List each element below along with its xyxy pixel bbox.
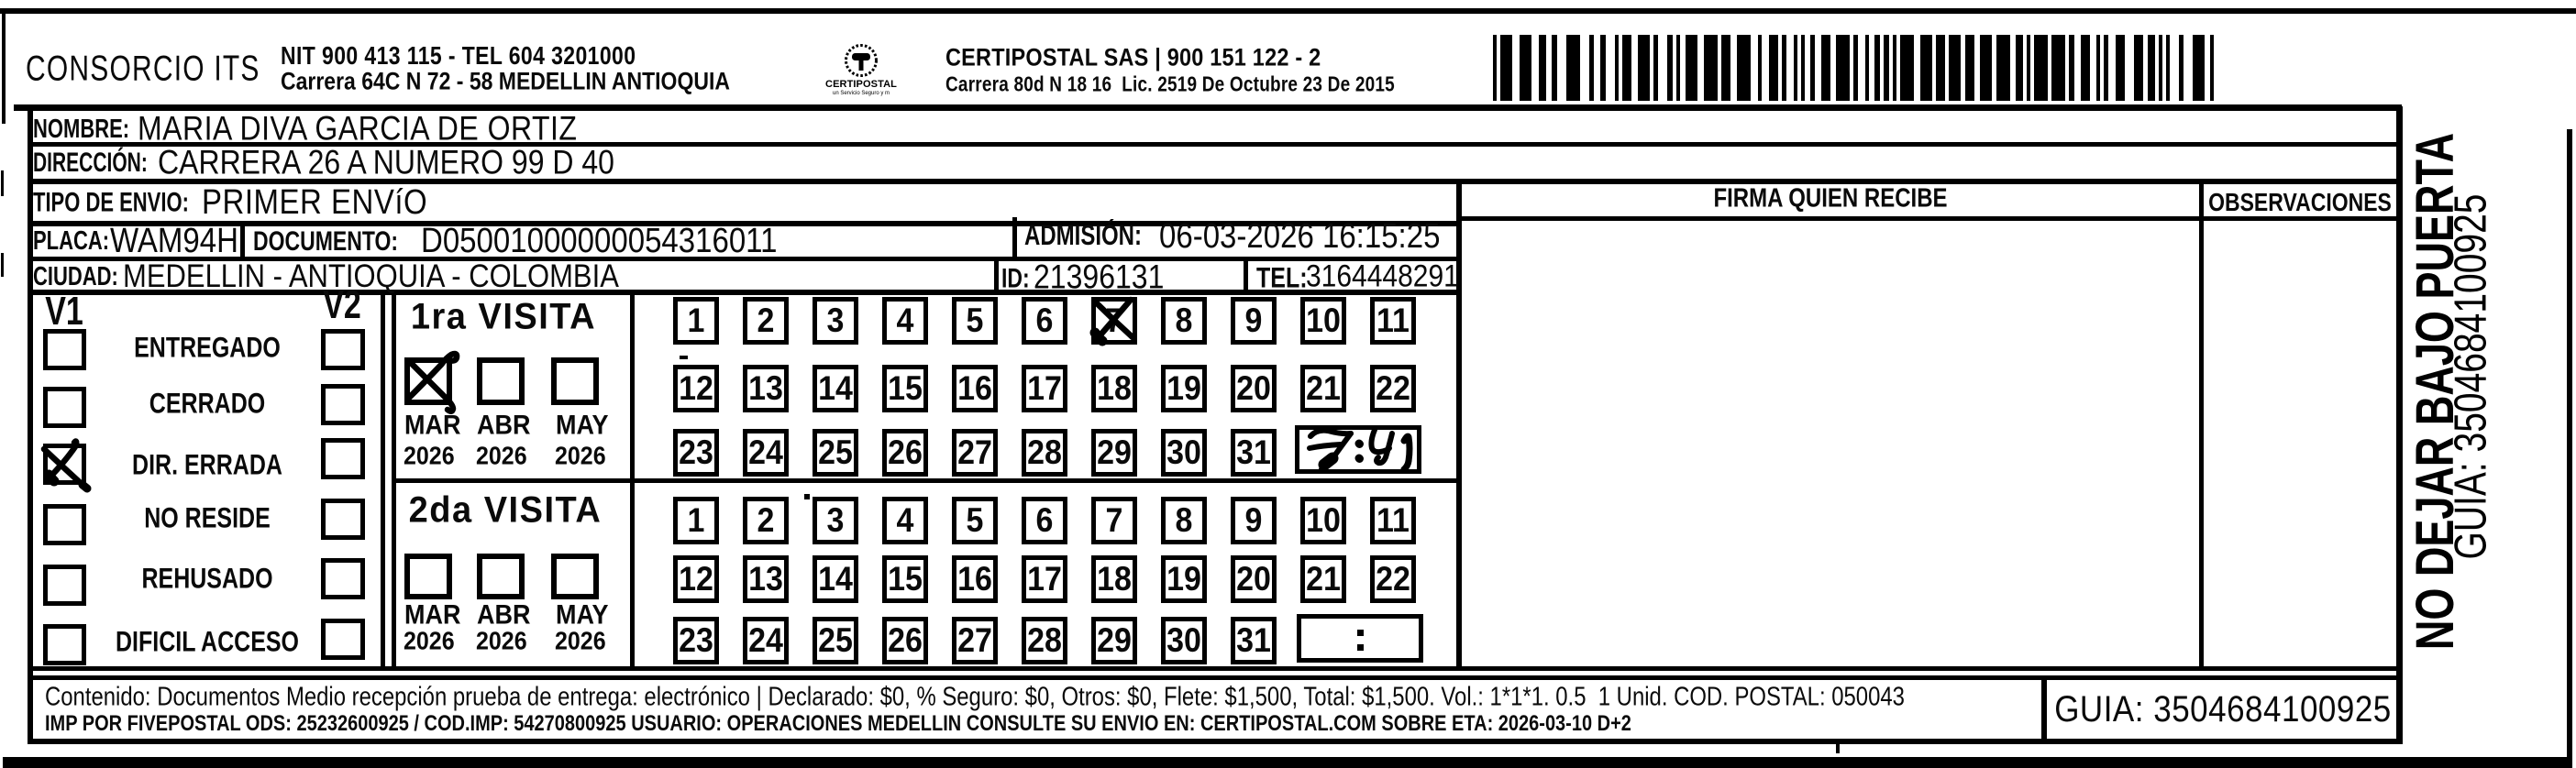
svg-text:CERTIPOSTAL: CERTIPOSTAL: [825, 79, 897, 90]
svg-text:un Servicio Seguro y m: un Servicio Seguro y m: [833, 91, 890, 96]
